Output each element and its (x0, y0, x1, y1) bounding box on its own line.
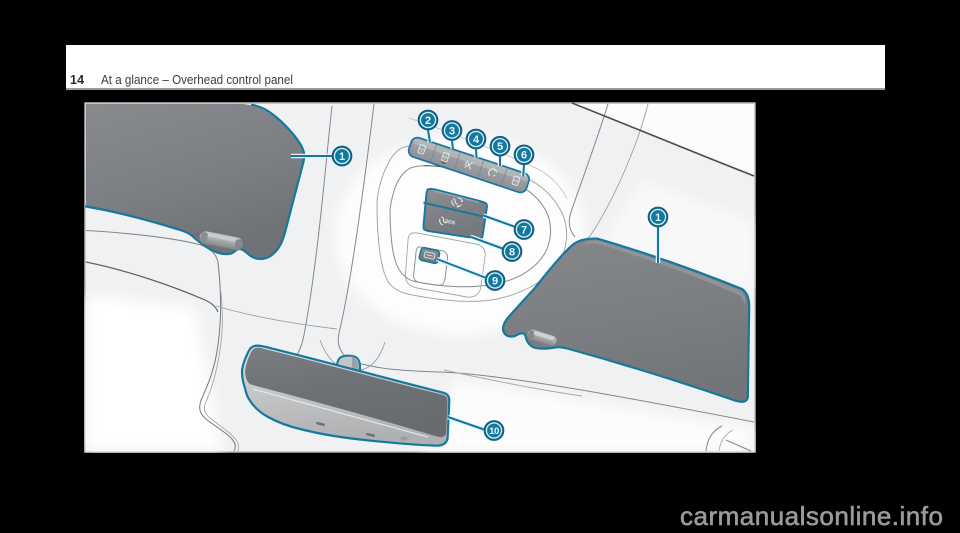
svg-text:1: 1 (339, 151, 345, 163)
svg-text:5: 5 (497, 141, 503, 153)
svg-text:1: 1 (655, 212, 661, 224)
svg-text:6: 6 (521, 150, 527, 162)
svg-text:9: 9 (492, 275, 498, 287)
svg-text:3: 3 (449, 125, 455, 137)
svg-text:7: 7 (521, 224, 527, 236)
svg-text:10: 10 (489, 426, 499, 437)
svg-text:8: 8 (509, 246, 515, 258)
svg-text:2: 2 (425, 115, 431, 127)
svg-text:4: 4 (473, 134, 480, 146)
